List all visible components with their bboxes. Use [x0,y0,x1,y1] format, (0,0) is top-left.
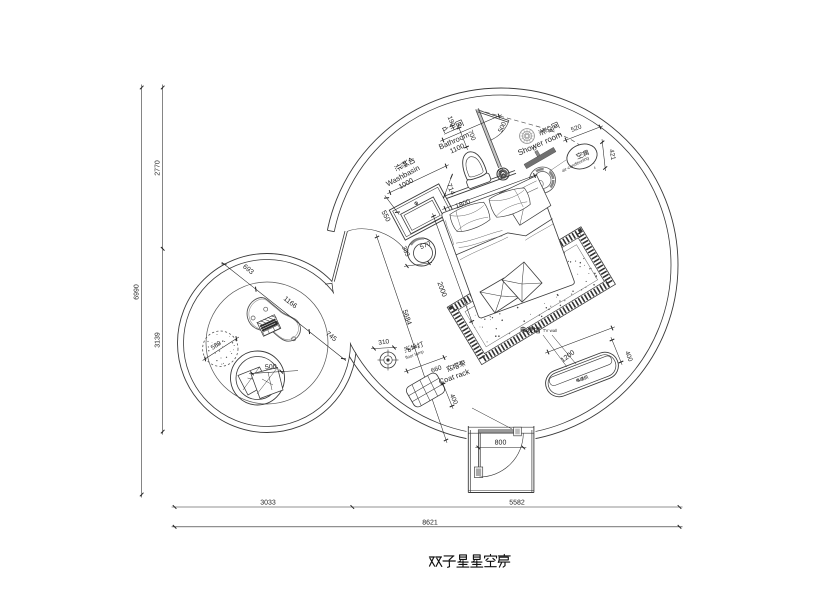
svg-text:TV wall: TV wall [543,328,557,333]
svg-text:8621: 8621 [422,519,438,526]
svg-text:800: 800 [495,440,507,447]
svg-text:5582: 5582 [509,500,525,507]
svg-text:3033: 3033 [260,500,276,507]
svg-text:2770: 2770 [155,160,162,176]
svg-text:6990: 6990 [134,284,141,300]
svg-text:3139: 3139 [155,332,162,348]
svg-text:500: 500 [265,364,277,372]
